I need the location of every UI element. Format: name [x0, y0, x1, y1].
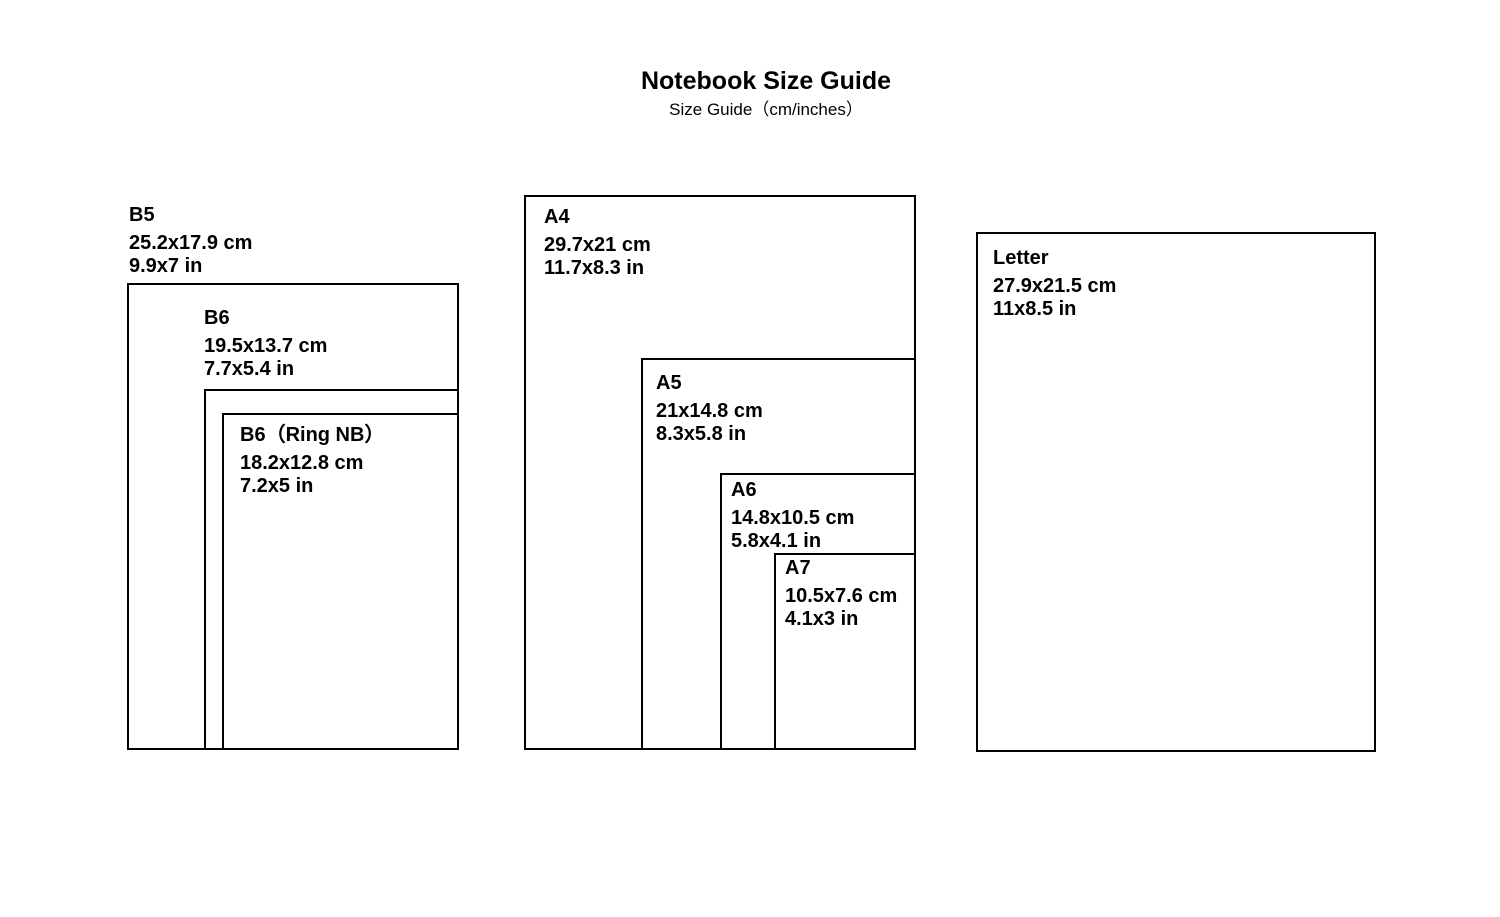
- size-label-a4: A4 29.7x21 cm 11.7x8.3 in: [544, 206, 651, 280]
- size-inches: 7.2x5 in: [240, 475, 384, 498]
- page-header: Notebook Size Guide Size Guide（cm/inches…: [516, 66, 1016, 120]
- size-inches: 9.9x7 in: [129, 255, 252, 278]
- size-name: B6（Ring NB）: [240, 424, 384, 447]
- notebook-size-guide-diagram: Notebook Size Guide Size Guide（cm/inches…: [0, 0, 1500, 917]
- size-name: A5: [656, 372, 763, 395]
- size-cm: 18.2x12.8 cm: [240, 452, 384, 475]
- page-title: Notebook Size Guide: [516, 66, 1016, 96]
- size-cm: 29.7x21 cm: [544, 234, 651, 257]
- size-name: A4: [544, 206, 651, 229]
- size-name: A6: [731, 479, 854, 502]
- size-cm: 19.5x13.7 cm: [204, 335, 327, 358]
- size-label-a6: A6 14.8x10.5 cm 5.8x4.1 in: [731, 479, 854, 553]
- size-cm: 14.8x10.5 cm: [731, 507, 854, 530]
- size-cm: 21x14.8 cm: [656, 400, 763, 423]
- page-subtitle: Size Guide（cm/inches）: [516, 99, 1016, 120]
- size-label-b6: B6 19.5x13.7 cm 7.7x5.4 in: [204, 307, 327, 381]
- size-inches: 8.3x5.8 in: [656, 423, 763, 446]
- size-inches: 11x8.5 in: [993, 298, 1116, 321]
- size-label-b5: B5 25.2x17.9 cm 9.9x7 in: [129, 204, 252, 278]
- size-label-letter: Letter 27.9x21.5 cm 11x8.5 in: [993, 247, 1116, 321]
- size-name: Letter: [993, 247, 1116, 270]
- size-label-a5: A5 21x14.8 cm 8.3x5.8 in: [656, 372, 763, 446]
- size-inches: 11.7x8.3 in: [544, 257, 651, 280]
- size-name: B5: [129, 204, 252, 227]
- size-name: A7: [785, 557, 897, 580]
- size-cm: 10.5x7.6 cm: [785, 585, 897, 608]
- size-label-a7: A7 10.5x7.6 cm 4.1x3 in: [785, 557, 897, 631]
- size-name: B6: [204, 307, 327, 330]
- size-inches: 5.8x4.1 in: [731, 530, 854, 553]
- size-inches: 7.7x5.4 in: [204, 358, 327, 381]
- size-inches: 4.1x3 in: [785, 608, 897, 631]
- size-label-b6-ring: B6（Ring NB） 18.2x12.8 cm 7.2x5 in: [240, 424, 384, 498]
- size-cm: 25.2x17.9 cm: [129, 232, 252, 255]
- size-cm: 27.9x21.5 cm: [993, 275, 1116, 298]
